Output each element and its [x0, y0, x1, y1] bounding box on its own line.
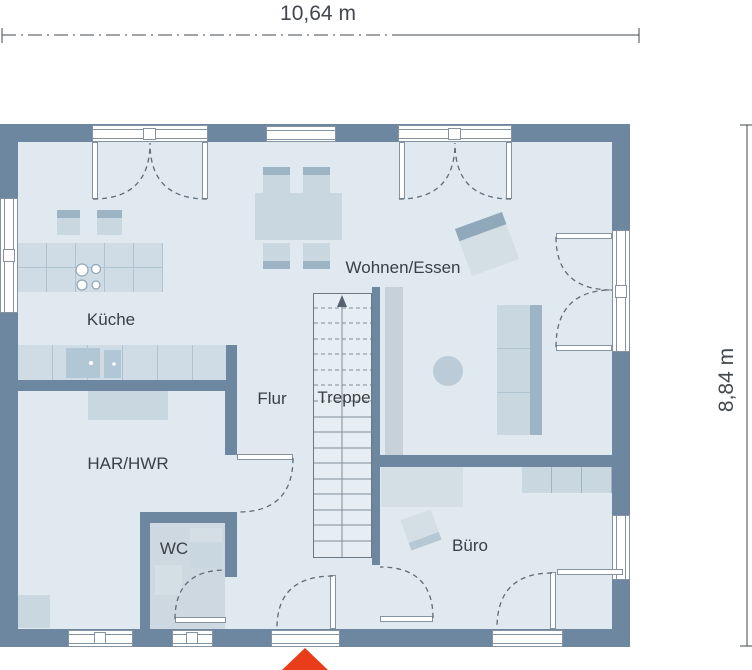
door-leaf — [399, 142, 405, 199]
office-desk — [381, 467, 463, 507]
door-leaf-wc — [175, 617, 226, 623]
room-label-kueche: Küche — [87, 310, 135, 330]
living-shelf-column — [385, 287, 403, 457]
dining-chair-1 — [263, 167, 290, 193]
wall-stairs — [372, 287, 380, 565]
window-handle-icon — [94, 632, 106, 644]
dimension-width-label: 10,64 m — [280, 2, 356, 26]
har-appliance-row — [88, 391, 168, 420]
door-leaf-har — [237, 454, 293, 460]
wall-kitchen-har — [18, 380, 237, 391]
door-leaf-entrance — [330, 575, 336, 629]
door-handle-icon — [615, 285, 627, 298]
dimension-line-height — [740, 125, 752, 646]
door-leaf — [92, 142, 98, 199]
sofa-backrest — [530, 305, 542, 435]
side-table-round — [433, 356, 463, 386]
room-label-wc: WC — [160, 539, 188, 559]
kitchen-cabinet-1 — [57, 210, 80, 235]
wall-living-office — [380, 455, 612, 467]
room-label-wohnen: Wohnen/Essen — [346, 258, 461, 278]
wall-wc-right — [225, 512, 237, 577]
office-shelf — [522, 467, 613, 493]
room-label-buero: Büro — [452, 536, 488, 556]
wall-har-flur — [225, 391, 237, 455]
door-leaf-office — [380, 616, 433, 622]
entrance-arrow-icon — [282, 648, 328, 670]
dining-chair-4 — [303, 243, 330, 269]
window-top — [266, 126, 336, 142]
door-handle-icon — [143, 128, 156, 140]
kitchen-oven — [66, 348, 100, 378]
staircase — [313, 293, 372, 558]
entrance-door-opening — [271, 630, 340, 647]
door-leaf-terrace — [550, 572, 556, 629]
wall-wc-left — [140, 523, 150, 629]
dimension-height-label: 8,84 m — [715, 348, 739, 412]
floor-plan: Küche Wohnen/Essen Flur Treppe HAR/HWR W… — [0, 0, 752, 670]
door-leaf — [202, 142, 208, 199]
sofa-seat — [497, 305, 530, 435]
wall-wc-top — [140, 512, 237, 523]
wall-kitchen-stub — [226, 345, 237, 391]
door-leaf — [556, 345, 612, 351]
wc-washbasin — [155, 565, 182, 595]
room-label-treppe: Treppe — [317, 388, 370, 408]
door-leaf — [506, 142, 512, 199]
wc-toilet — [190, 528, 222, 568]
window-leaf — [557, 569, 623, 575]
kitchen-sink-unit — [104, 350, 121, 378]
door-leaf — [556, 233, 612, 239]
har-storage-box — [18, 595, 50, 628]
window-handle-icon — [3, 249, 15, 262]
door-handle-icon — [448, 128, 461, 140]
kitchen-counter-left — [18, 243, 163, 292]
kitchen-cabinet-2 — [97, 210, 122, 235]
dining-table — [255, 193, 342, 240]
dining-chair-2 — [303, 167, 330, 193]
window-handle-icon — [186, 632, 198, 644]
dimension-line-width — [2, 28, 639, 43]
kitchen-counter-bottom — [18, 345, 227, 380]
dining-chair-3 — [263, 243, 290, 269]
terrace-door-office — [492, 630, 563, 647]
room-label-flur: Flur — [257, 389, 286, 409]
room-label-har: HAR/HWR — [87, 454, 168, 474]
